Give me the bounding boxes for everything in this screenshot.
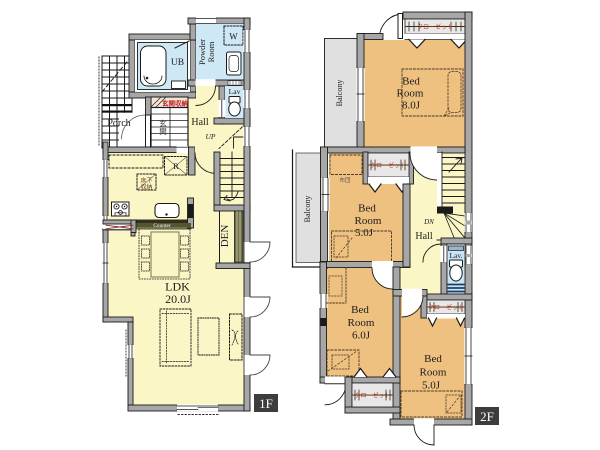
svg-text:Bed: Bed (424, 353, 442, 365)
svg-text:DEN: DEN (219, 225, 231, 248)
svg-text:DN: DN (423, 218, 434, 226)
svg-text:Room: Room (206, 41, 216, 62)
svg-text:Bed: Bed (358, 203, 376, 215)
svg-text:Hall: Hall (191, 117, 208, 128)
svg-text:Lav.: Lav. (449, 251, 462, 260)
svg-text:5.0J: 5.0J (355, 227, 374, 239)
svg-text:玄関収納: 玄関収納 (162, 99, 189, 108)
svg-text:UB: UB (171, 58, 184, 68)
svg-text:クローゼット: クローゼット (354, 392, 390, 400)
svg-text:W: W (229, 32, 238, 42)
svg-text:収納: 収納 (140, 183, 152, 191)
svg-text:R: R (173, 161, 179, 171)
svg-text:Room: Room (397, 88, 424, 100)
svg-text:8.0J: 8.0J (402, 100, 421, 112)
svg-text:Balcony: Balcony (303, 196, 312, 223)
svg-text:Room: Room (348, 317, 375, 329)
svg-text:Bed: Bed (351, 304, 369, 316)
svg-text:2F: 2F (480, 409, 494, 424)
svg-text:床下: 床下 (140, 177, 152, 185)
svg-text:Room: Room (420, 367, 447, 379)
svg-text:5.0J: 5.0J (422, 380, 441, 392)
svg-text:6.0J: 6.0J (352, 330, 371, 342)
svg-text:関: 関 (159, 127, 167, 136)
svg-text:クローゼット: クローゼット (417, 23, 453, 31)
svg-text:Lav: Lav (229, 87, 241, 96)
svg-text:UP: UP (206, 132, 216, 141)
svg-text:Balcony: Balcony (335, 80, 344, 107)
svg-text:Counter: Counter (153, 223, 171, 229)
svg-text:Bed: Bed (402, 76, 420, 88)
svg-text:クローゼット: クローゼット (428, 304, 464, 312)
svg-text:クローゼット: クローゼット (370, 162, 406, 170)
svg-text:1F: 1F (259, 396, 273, 411)
svg-text:20.0J: 20.0J (165, 292, 191, 306)
svg-text:Room: Room (355, 215, 382, 227)
svg-text:布団: 布団 (339, 176, 351, 184)
svg-text:Hall: Hall (415, 231, 432, 242)
